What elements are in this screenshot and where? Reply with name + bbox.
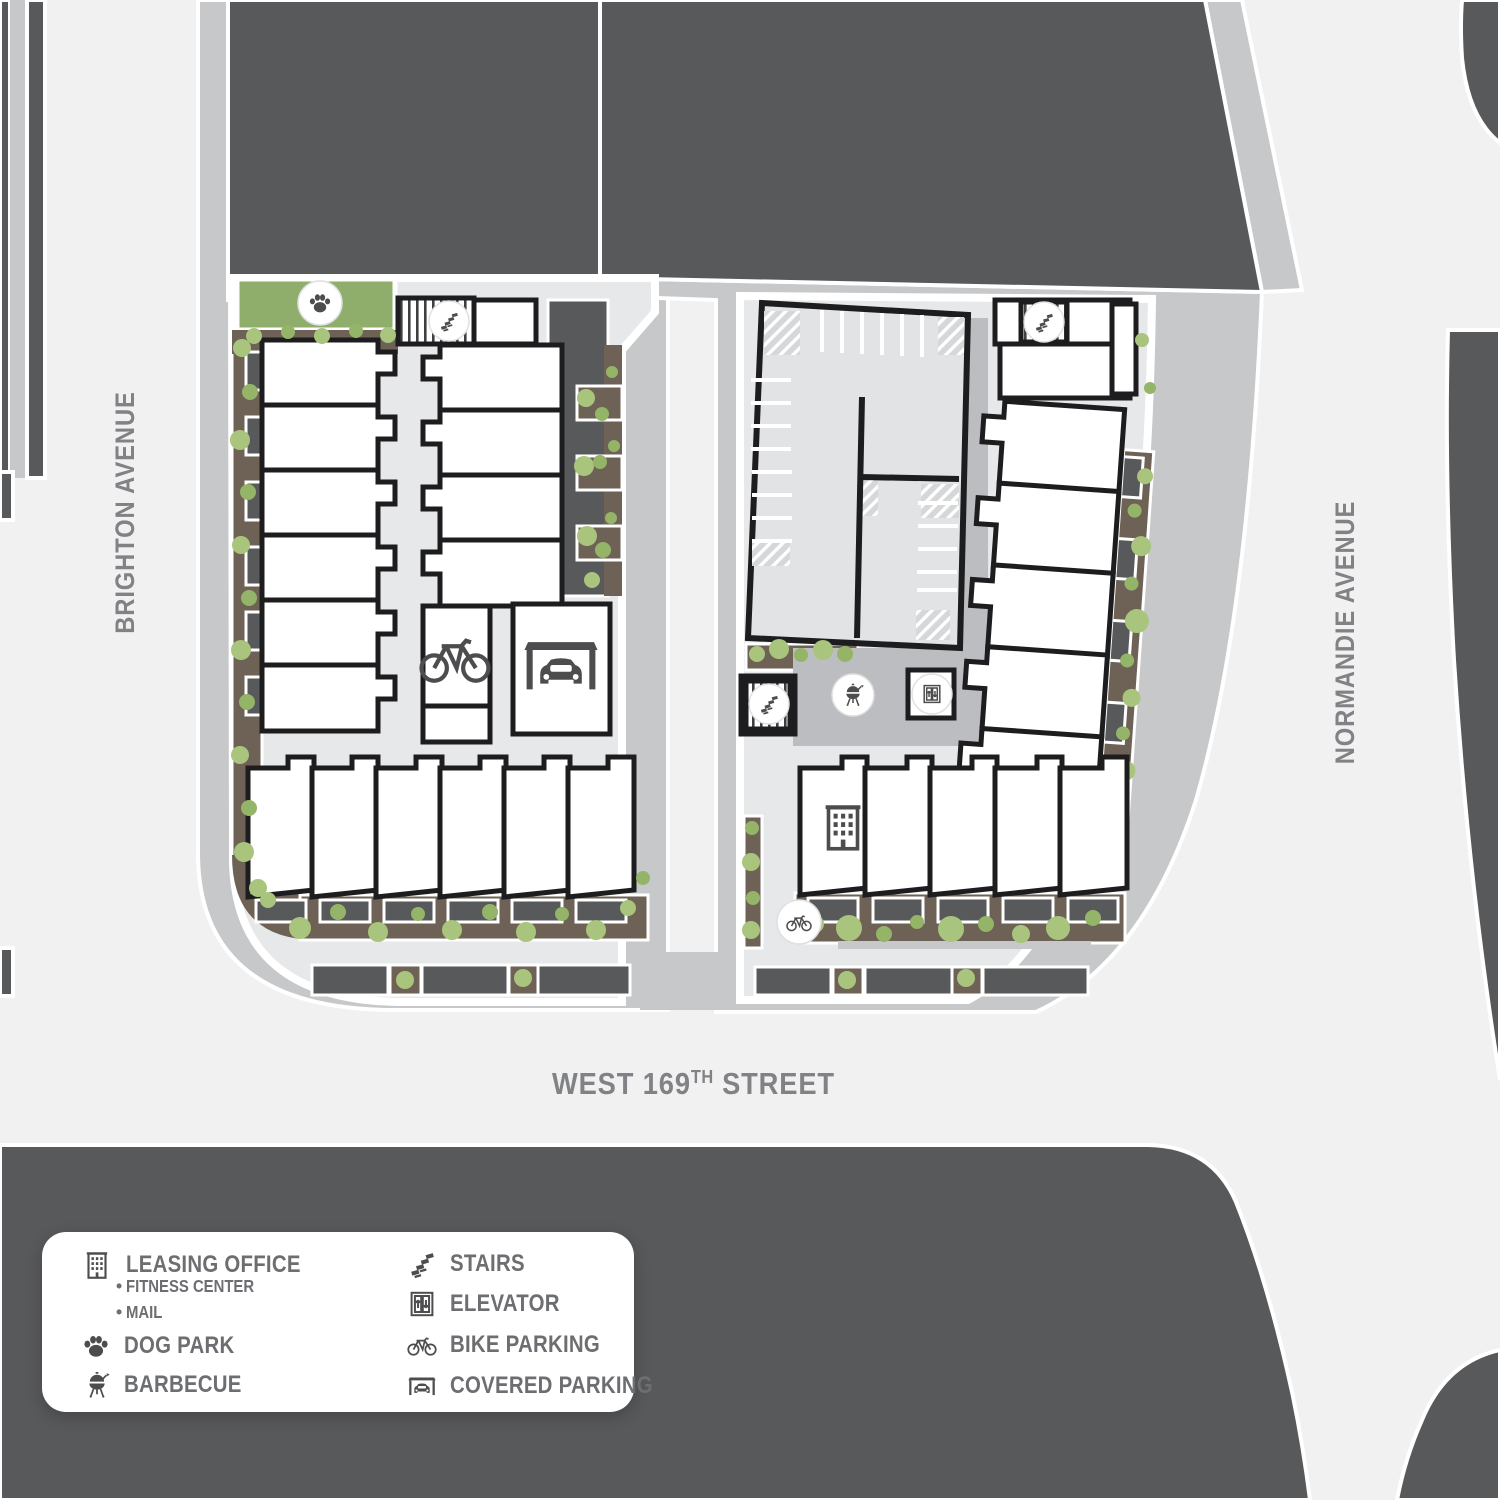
dog-park-icon (80, 1330, 112, 1362)
west-169th-rest-text: STREET (714, 1066, 835, 1101)
townhouse-unit (865, 757, 932, 895)
legend-sublabel: FITNESS CENTER (126, 1276, 254, 1297)
legend-label: LEASING OFFICE (126, 1251, 301, 1279)
legend: LEASING OFFICE • FITNESS CENTER • MAIL D… (42, 1232, 634, 1412)
townhouse-unit (262, 600, 395, 666)
west-169th-sup-text: TH (691, 1066, 714, 1087)
leasing-office-icon (80, 1248, 114, 1282)
building-wing (1112, 304, 1136, 394)
townhouse-unit (423, 345, 562, 411)
legend-label: BIKE PARKING (450, 1331, 600, 1359)
legend-label: DOG PARK (124, 1332, 234, 1360)
dog-park-icon (298, 281, 342, 325)
stairs-icon (749, 684, 789, 724)
townhouse-unit (312, 757, 378, 897)
street-label-west-169th-street: WEST 169TH STREET (535, 1030, 835, 1102)
street-label-brighton-avenue: BRIGHTON AVENUE (79, 391, 141, 648)
townhouse-unit (423, 540, 562, 606)
townhouse-unit (262, 535, 395, 601)
barbecue-icon (82, 1370, 112, 1400)
townhouse-unit (1060, 757, 1127, 895)
legend-row-dog-park: DOG PARK (80, 1330, 254, 1362)
stairs-icon (429, 301, 469, 341)
townhouse-unit (930, 757, 997, 895)
normandie-avenue-text: NORMANDIE AVENUE (1330, 501, 1360, 765)
stairs-icon (406, 1248, 438, 1280)
bullet: • (116, 1276, 122, 1297)
townhouse-unit (262, 340, 395, 406)
townhouse-unit (995, 757, 1062, 895)
site-map: BRIGHTON AVENUE NORMANDIE AVENUE WEST 16… (0, 0, 1500, 1500)
legend-sub-fitness-center: • FITNESS CENTER (116, 1276, 277, 1297)
legend-sub-mail: • MAIL (116, 1302, 169, 1323)
townhouse-unit (262, 470, 395, 536)
covered-parking-icon (406, 1370, 438, 1402)
townhouse-unit (248, 757, 314, 897)
townhouse-unit (376, 757, 442, 897)
elevator-icon (912, 674, 952, 714)
stairs-icon (1024, 302, 1064, 342)
west-169th-base-text: WEST 169 (552, 1066, 691, 1101)
parking-lot (748, 303, 968, 648)
townhouse-unit (474, 300, 536, 344)
townhouse-unit (262, 665, 395, 731)
bike-parking-icon (777, 900, 821, 944)
townhouse-unit (504, 757, 570, 897)
legend-row-bike-parking: BIKE PARKING (406, 1329, 627, 1361)
townhouse-unit (423, 475, 562, 541)
legend-label: STAIRS (450, 1250, 525, 1278)
legend-row-covered-parking: COVERED PARKING (406, 1370, 689, 1402)
elevator-icon (406, 1288, 438, 1320)
bike-parking-icon (406, 1329, 438, 1361)
bullet: • (116, 1302, 122, 1323)
utility-room (423, 706, 490, 742)
townhouse-unit (423, 410, 562, 476)
townhouse-unit (568, 757, 634, 897)
townhouse-unit (262, 405, 395, 471)
legend-label: ELEVATOR (450, 1290, 560, 1318)
brighton-avenue-text: BRIGHTON AVENUE (110, 391, 140, 633)
legend-label: COVERED PARKING (450, 1372, 653, 1400)
legend-label: BARBECUE (124, 1371, 242, 1399)
legend-sublabel: MAIL (126, 1302, 162, 1323)
street-label-normandie-avenue: NORMANDIE AVENUE (1299, 501, 1361, 780)
legend-row-barbecue: BARBECUE (82, 1370, 262, 1400)
townhouse-unit (440, 757, 506, 897)
legend-row-elevator: ELEVATOR (406, 1288, 579, 1320)
barbecue-icon (832, 674, 874, 716)
legend-row-stairs: STAIRS (406, 1248, 538, 1280)
